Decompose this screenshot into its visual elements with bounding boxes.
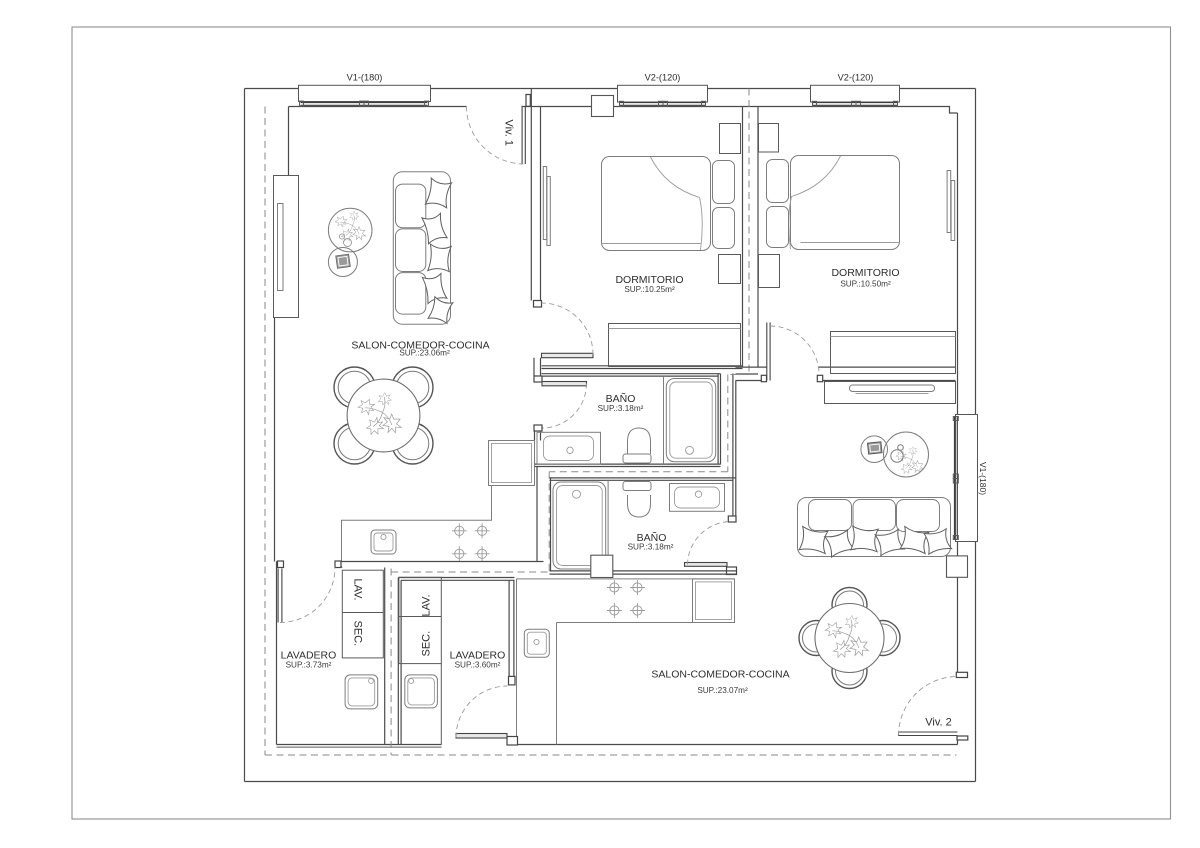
- svg-text:SALON-COMEDOR-COCINA: SALON-COMEDOR-COCINA: [651, 669, 789, 681]
- svg-text:V1-(180): V1-(180): [978, 462, 988, 495]
- svg-text:Viv. 1: Viv. 1: [503, 120, 515, 147]
- svg-text:SUP.:3.18m²: SUP.:3.18m²: [628, 542, 674, 551]
- svg-text:SUP.:3.73m²: SUP.:3.73m²: [286, 661, 332, 670]
- svg-text:SUP.:10.25m²: SUP.:10.25m²: [624, 285, 675, 294]
- svg-text:SEC.: SEC.: [421, 631, 433, 657]
- svg-text:LAV.: LAV.: [421, 594, 433, 616]
- svg-text:V2-(120): V2-(120): [645, 73, 681, 83]
- svg-text:V1-(180): V1-(180): [347, 73, 383, 83]
- svg-text:SUP.:23.06m²: SUP.:23.06m²: [399, 349, 450, 358]
- svg-text:SUP.:3.60m²: SUP.:3.60m²: [455, 661, 501, 670]
- svg-text:LAV.: LAV.: [352, 579, 364, 601]
- svg-text:SUP.:23.07m²: SUP.:23.07m²: [697, 686, 748, 695]
- svg-text:DORMITORIO: DORMITORIO: [831, 267, 899, 279]
- svg-text:Viv. 2: Viv. 2: [925, 717, 952, 729]
- svg-text:SUP.:3.18m²: SUP.:3.18m²: [598, 404, 644, 413]
- svg-text:V2-(120): V2-(120): [838, 73, 874, 83]
- svg-text:SEC.: SEC.: [352, 621, 364, 647]
- svg-text:SUP.:10.50m²: SUP.:10.50m²: [840, 280, 891, 289]
